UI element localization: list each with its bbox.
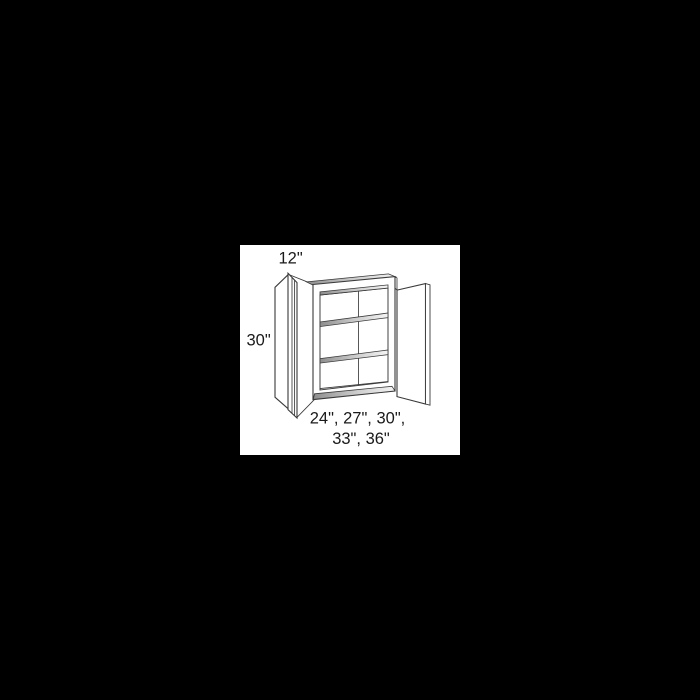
left-door xyxy=(288,273,315,418)
cabinet-opening xyxy=(320,288,388,390)
right-door-edge xyxy=(426,284,431,406)
depth-dimension-label: 12" xyxy=(279,249,303,267)
canvas-background: 12" 30" 24", 27", 30", 33", 36" xyxy=(0,0,700,700)
right-door xyxy=(395,284,430,406)
cabinet-diagram: 12" 30" 24", 27", 30", 33", 36" xyxy=(240,245,460,455)
width-options-label-line1: 24", 27", 30", xyxy=(310,410,406,428)
width-options-label-line2: 33", 36" xyxy=(332,430,390,448)
cabinet-left-side-panel xyxy=(275,274,289,409)
drawing-panel: 12" 30" 24", 27", 30", 33", 36" xyxy=(240,245,460,455)
height-dimension-label: 30" xyxy=(247,331,271,349)
cabinet-body xyxy=(313,277,397,400)
